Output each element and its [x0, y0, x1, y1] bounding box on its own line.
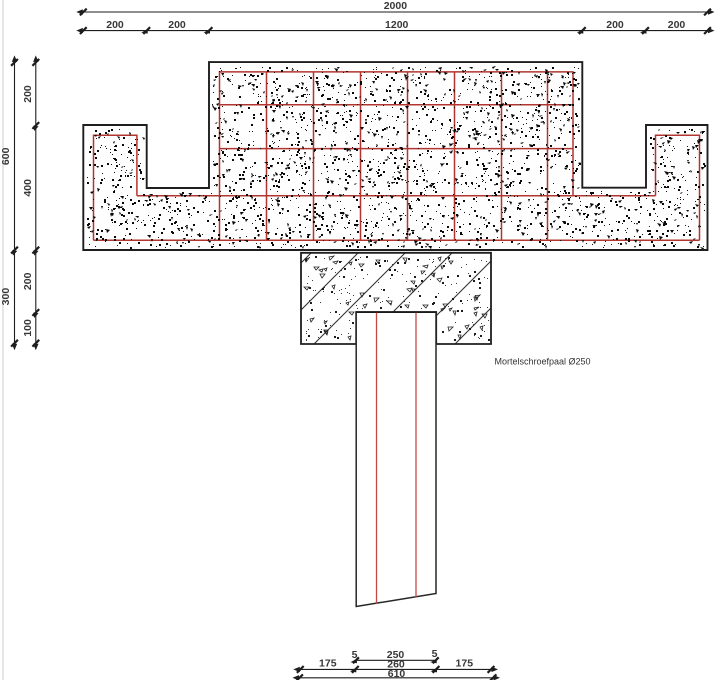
svg-text:Mortelschroefpaal Ø250: Mortelschroefpaal Ø250 [495, 357, 591, 367]
svg-text:175: 175 [456, 658, 474, 670]
svg-text:200: 200 [168, 19, 186, 31]
svg-text:600: 600 [0, 147, 12, 165]
svg-text:100: 100 [22, 319, 34, 337]
svg-text:200: 200 [22, 272, 34, 290]
svg-text:200: 200 [22, 85, 34, 103]
svg-text:175: 175 [319, 658, 337, 670]
svg-text:200: 200 [106, 19, 124, 31]
svg-text:5: 5 [432, 648, 438, 660]
svg-text:400: 400 [22, 179, 34, 197]
svg-text:2000: 2000 [384, 0, 408, 12]
svg-text:300: 300 [0, 288, 12, 306]
svg-text:1200: 1200 [385, 19, 409, 31]
svg-text:5: 5 [352, 649, 358, 661]
svg-text:200: 200 [668, 19, 686, 31]
svg-text:610: 610 [388, 668, 406, 680]
svg-text:200: 200 [606, 19, 624, 31]
